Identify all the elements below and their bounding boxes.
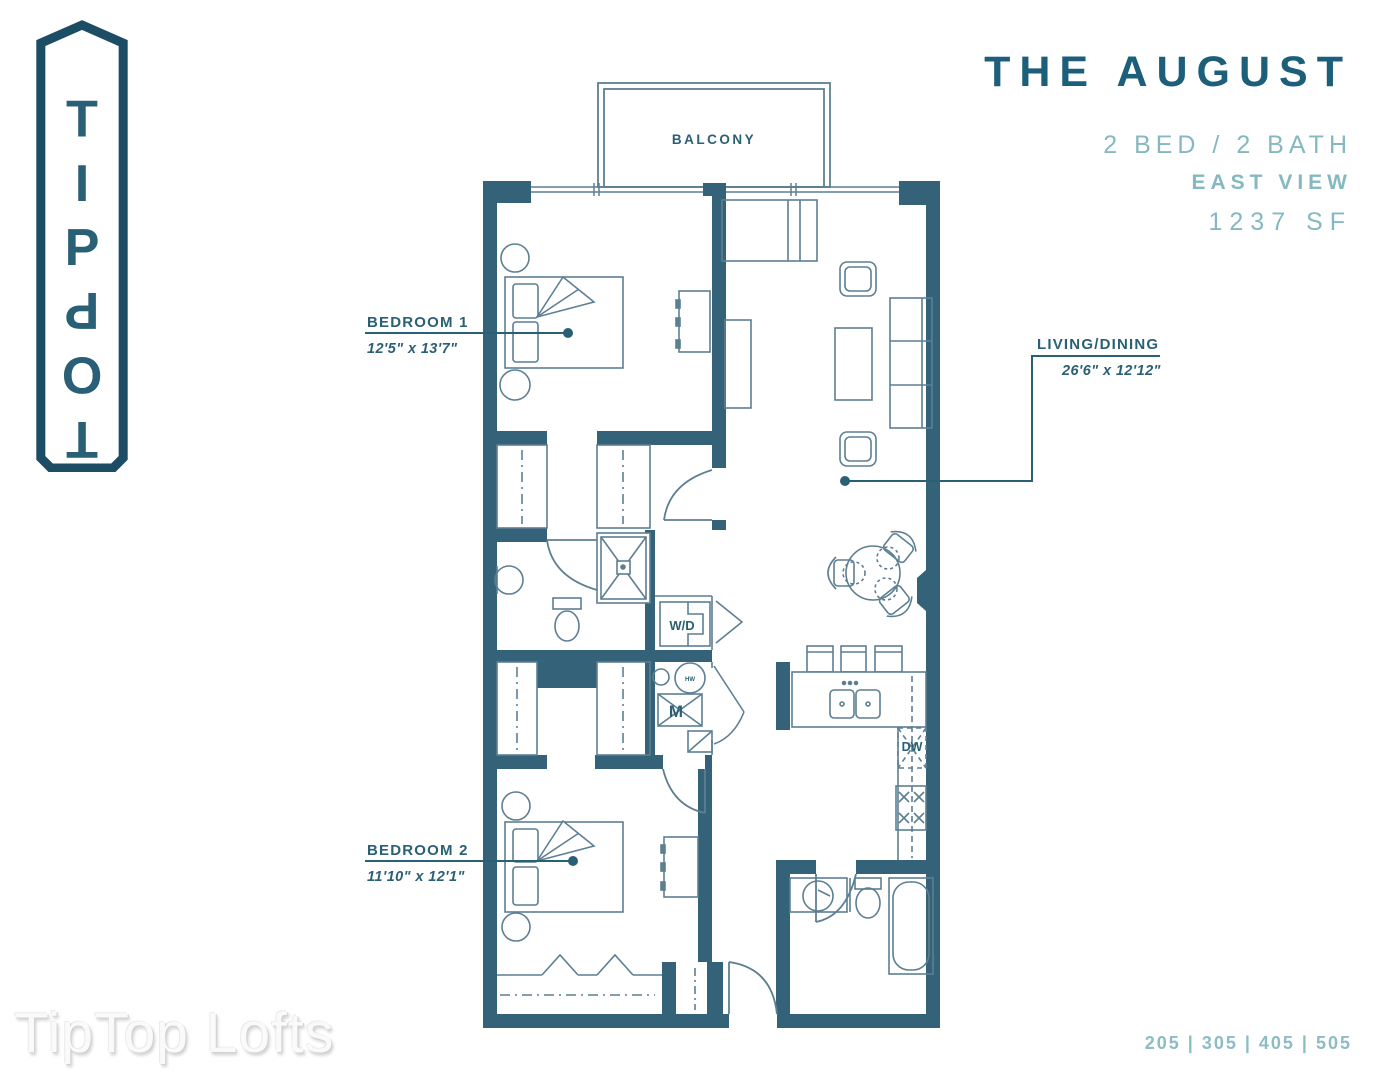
- water-heater-label: HW: [685, 677, 695, 683]
- watermark: TipTop Lofts: [14, 1000, 334, 1066]
- nightstand: [502, 913, 530, 941]
- toilet-bowl: [856, 888, 880, 918]
- dresser: [664, 837, 698, 897]
- balcony-label: BALCONY: [672, 132, 756, 147]
- bifold-door: [716, 601, 742, 643]
- living-dining-label: LIVING/DINING: [1037, 336, 1159, 353]
- bifold-door: [597, 955, 633, 975]
- dishwasher-label: DW: [902, 740, 923, 754]
- sink: [495, 566, 523, 594]
- bifold-door: [542, 955, 578, 975]
- bar-stool: [807, 646, 833, 672]
- door-leaf: [714, 666, 744, 712]
- bar-stool: [875, 646, 902, 672]
- unit-numbers: 205 | 305 | 405 | 505: [1145, 1033, 1352, 1054]
- floorplan-drawing: BALCONY BEDROOM 1 12'5" x 13'7" BEDROOM …: [0, 0, 1398, 1080]
- nightstand: [502, 792, 530, 820]
- washer-dryer-label: W/D: [669, 618, 694, 633]
- tv-console: [725, 320, 751, 408]
- toilet-bowl: [555, 611, 579, 641]
- coffee-table: [835, 328, 872, 400]
- bedroom1-dims: 12'5" x 13'7": [367, 341, 458, 357]
- kitchen-counter: [792, 672, 926, 727]
- nightstand: [501, 244, 529, 272]
- wall-column-bump: [917, 570, 926, 611]
- floorplan-page: T I P P O T THE AUGUST 2 BED / 2 BATH EA…: [0, 0, 1398, 1080]
- mechanical-label: M: [669, 702, 683, 721]
- vanity: [790, 878, 847, 912]
- bedroom2-label: BEDROOM 2: [367, 842, 469, 859]
- living-dining-dims: 26'6" x 12'12": [1061, 363, 1162, 379]
- entry-closet: [722, 200, 817, 261]
- door-swing: [714, 712, 744, 744]
- bar-stool: [841, 646, 866, 672]
- nightstand: [500, 370, 530, 400]
- dresser: [679, 291, 710, 352]
- bedroom2-dims: 11'10" x 12'1": [367, 869, 465, 885]
- sofa: [890, 298, 932, 428]
- bedroom1-label: BEDROOM 1: [367, 314, 469, 331]
- toilet-tank: [553, 598, 581, 609]
